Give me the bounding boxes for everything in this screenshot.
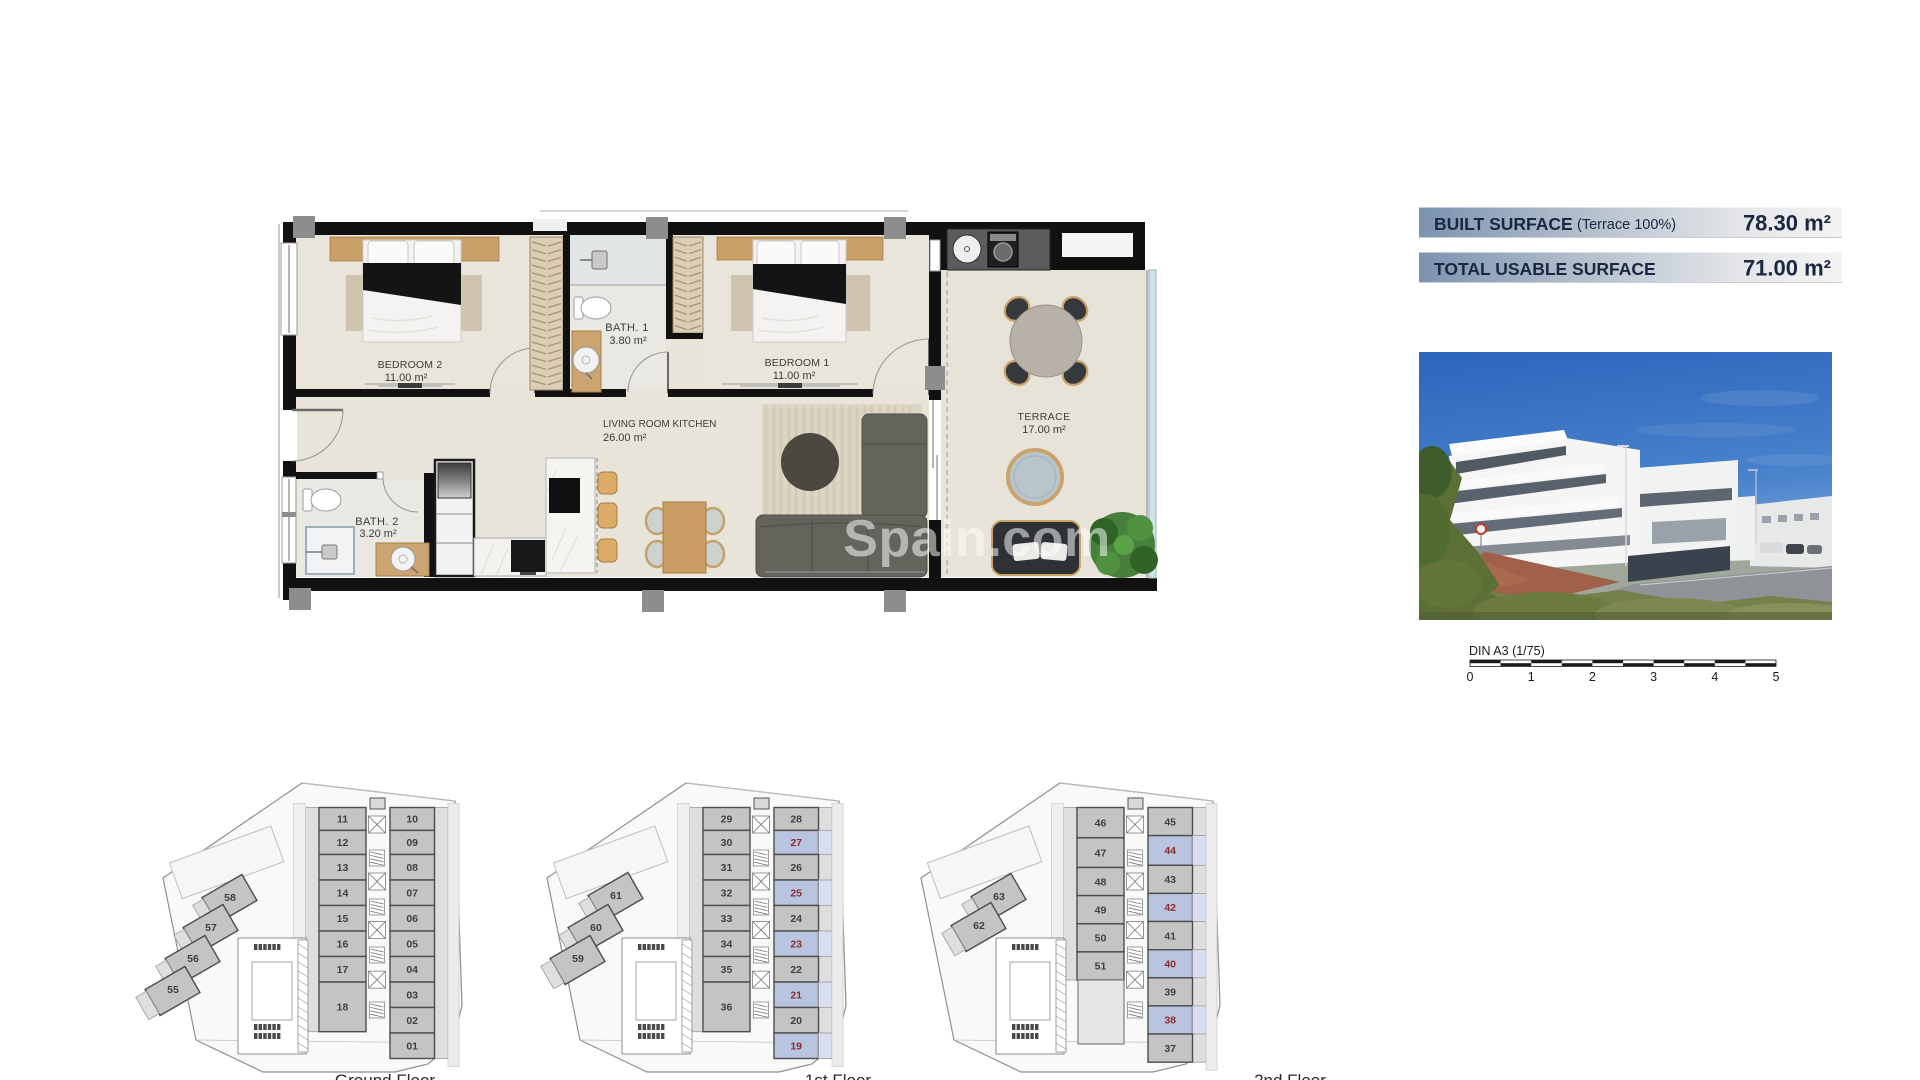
svg-text:51: 51 (1095, 961, 1107, 973)
svg-text:1st Floor: 1st Floor (805, 1071, 871, 1080)
svg-text:21: 21 (790, 990, 802, 1002)
svg-text:16: 16 (337, 939, 349, 951)
svg-text:LIVING ROOM KITCHEN: LIVING ROOM KITCHEN (603, 419, 716, 430)
svg-text:19: 19 (790, 1041, 802, 1053)
svg-text:23: 23 (790, 939, 802, 951)
svg-text:31: 31 (721, 862, 733, 874)
svg-text:58: 58 (224, 892, 236, 904)
svg-text:BATH. 2: BATH. 2 (355, 516, 399, 528)
svg-text:(Terrace 100%): (Terrace 100%) (1577, 217, 1676, 233)
svg-text:2nd Floor: 2nd Floor (1254, 1071, 1326, 1080)
svg-text:15: 15 (337, 913, 349, 925)
svg-text:45: 45 (1164, 816, 1176, 828)
svg-text:63: 63 (993, 891, 1005, 903)
svg-text:05: 05 (406, 939, 418, 951)
svg-text:29: 29 (721, 814, 733, 826)
svg-text:36: 36 (721, 1002, 733, 1014)
svg-text:55: 55 (167, 984, 179, 996)
svg-text:34: 34 (721, 939, 733, 951)
svg-text:28: 28 (790, 814, 802, 826)
svg-text:3: 3 (1650, 670, 1657, 684)
svg-text:10: 10 (406, 814, 418, 826)
svg-text:09: 09 (406, 837, 418, 849)
svg-text:26.00 m²: 26.00 m² (603, 432, 647, 444)
svg-text:25: 25 (790, 888, 802, 900)
svg-text:57: 57 (205, 922, 217, 934)
svg-text:35: 35 (721, 964, 733, 976)
svg-text:40: 40 (1164, 959, 1176, 971)
svg-text:TOTAL USABLE SURFACE: TOTAL USABLE SURFACE (1434, 259, 1656, 279)
svg-text:11.00 m²: 11.00 m² (773, 370, 816, 382)
svg-text:08: 08 (406, 862, 418, 874)
svg-text:BEDROOM 2: BEDROOM 2 (378, 359, 443, 371)
svg-text:06: 06 (406, 913, 418, 925)
svg-text:12: 12 (337, 837, 349, 849)
svg-text:48: 48 (1095, 876, 1107, 888)
svg-text:32: 32 (721, 888, 733, 900)
svg-text:60: 60 (590, 922, 602, 934)
svg-text:DIN A3 (1/75): DIN A3 (1/75) (1469, 644, 1545, 658)
svg-text:46: 46 (1095, 817, 1107, 829)
svg-text:Ground Floor: Ground Floor (335, 1071, 435, 1080)
svg-text:30: 30 (721, 837, 733, 849)
svg-text:04: 04 (406, 964, 418, 976)
svg-text:07: 07 (406, 888, 418, 900)
svg-text:3.20 m²: 3.20 m² (359, 528, 397, 540)
svg-text:24: 24 (790, 913, 802, 925)
svg-text:TERRACE: TERRACE (1018, 411, 1071, 423)
svg-text:41: 41 (1164, 930, 1176, 942)
svg-text:BEDROOM 1: BEDROOM 1 (765, 357, 830, 369)
svg-text:22: 22 (790, 964, 802, 976)
svg-text:26: 26 (790, 862, 802, 874)
svg-text:47: 47 (1095, 847, 1107, 859)
svg-text:61: 61 (610, 890, 622, 902)
svg-text:11.00 m²: 11.00 m² (385, 372, 428, 384)
svg-text:17: 17 (337, 964, 349, 976)
svg-text:03: 03 (406, 990, 418, 1002)
svg-text:42: 42 (1164, 902, 1176, 914)
svg-text:33: 33 (721, 913, 733, 925)
svg-text:43: 43 (1164, 874, 1176, 886)
svg-text:38: 38 (1164, 1015, 1176, 1027)
svg-text:2: 2 (1589, 670, 1596, 684)
svg-text:39: 39 (1164, 987, 1176, 999)
svg-text:78.30 m²: 78.30 m² (1743, 211, 1831, 236)
svg-text:02: 02 (406, 1015, 418, 1027)
svg-text:20: 20 (790, 1015, 802, 1027)
svg-text:14: 14 (337, 888, 349, 900)
svg-text:27: 27 (790, 837, 802, 849)
svg-text:49: 49 (1095, 905, 1107, 917)
svg-text:0: 0 (1467, 670, 1474, 684)
svg-text:62: 62 (973, 920, 985, 932)
svg-text:4: 4 (1711, 670, 1718, 684)
svg-text:11: 11 (337, 814, 348, 826)
svg-text:BATH. 1: BATH. 1 (605, 322, 649, 334)
svg-text:59: 59 (572, 953, 584, 965)
svg-text:Spain.com: Spain.com (843, 510, 1110, 568)
svg-text:50: 50 (1095, 933, 1107, 945)
svg-text:18: 18 (337, 1002, 349, 1014)
svg-text:37: 37 (1164, 1043, 1176, 1055)
svg-text:01: 01 (406, 1041, 418, 1053)
svg-text:13: 13 (337, 862, 349, 874)
svg-text:5: 5 (1773, 670, 1780, 684)
svg-text:56: 56 (187, 953, 199, 965)
svg-text:71.00 m²: 71.00 m² (1743, 256, 1831, 281)
svg-text:3.80 m²: 3.80 m² (609, 335, 647, 347)
svg-text:BUILT SURFACE: BUILT SURFACE (1434, 214, 1573, 234)
svg-text:44: 44 (1164, 845, 1176, 857)
svg-text:1: 1 (1528, 670, 1535, 684)
svg-text:17.00 m²: 17.00 m² (1022, 424, 1066, 436)
